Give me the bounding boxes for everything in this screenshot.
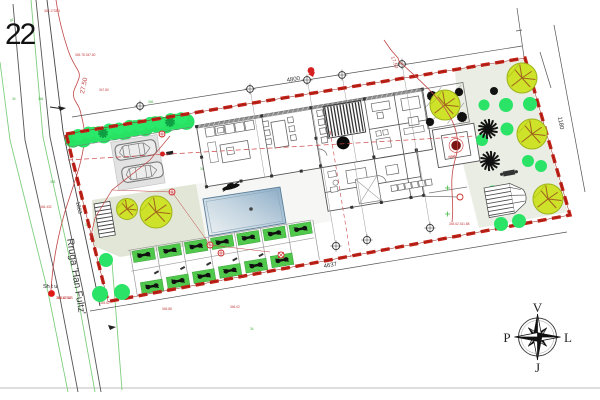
svg-text:345.78 347.60: 345.78 347.60: [75, 53, 96, 57]
svg-text:346: 346: [148, 100, 154, 104]
svg-text:347.80: 347.80: [99, 88, 109, 92]
svg-text:346.432: 346.432: [40, 205, 52, 209]
svg-text:345.88: 345.88: [162, 307, 172, 311]
svg-text:22: 22: [5, 18, 36, 51]
svg-text:34: 34: [250, 327, 254, 331]
svg-text:34: 34: [12, 97, 16, 101]
svg-text:345: 345: [50, 180, 56, 184]
svg-text:f.345: f.345: [448, 155, 455, 159]
svg-text:L: L: [564, 330, 572, 345]
svg-text:346.02: 346.02: [230, 305, 240, 309]
svg-text:345.62 341: 345.62 341: [57, 296, 73, 300]
svg-text:Sh t u: Sh t u: [43, 284, 57, 290]
svg-text:J: J: [535, 360, 540, 375]
svg-text:346: 346: [38, 97, 44, 101]
svg-text:348.1733.5: 348.1733.5: [44, 9, 60, 13]
svg-text:P: P: [503, 330, 510, 345]
svg-text:345.62 341.88: 345.62 341.88: [449, 222, 470, 226]
svg-text:g1: g1: [10, 18, 14, 22]
svg-text:V: V: [533, 300, 543, 315]
